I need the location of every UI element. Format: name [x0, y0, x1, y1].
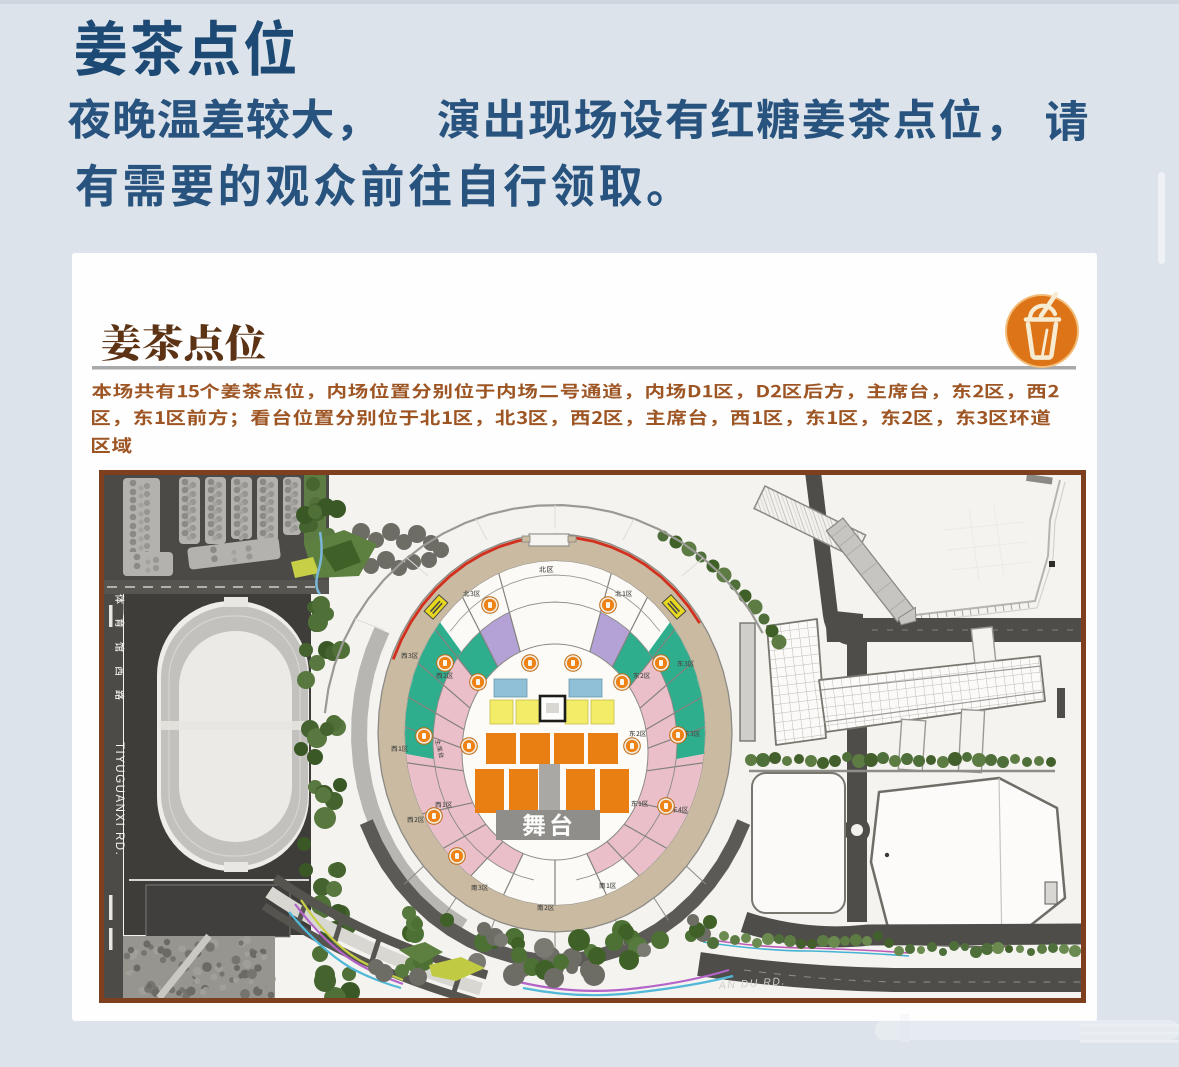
svg-text:TIYUGUANXI RD.: TIYUGUANXI RD. [113, 742, 125, 856]
